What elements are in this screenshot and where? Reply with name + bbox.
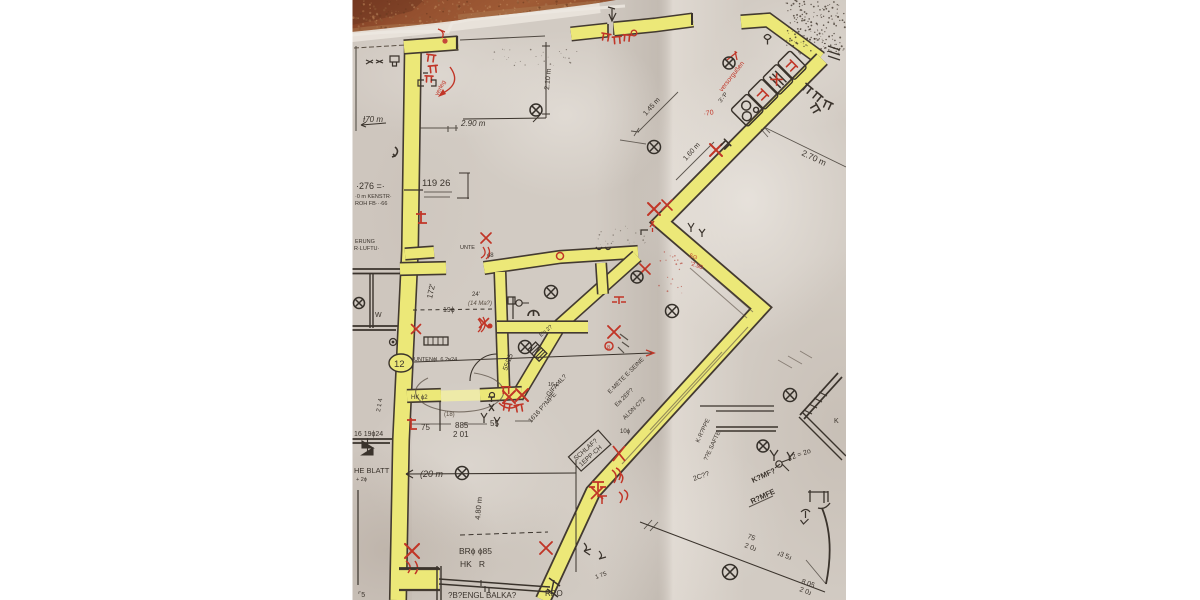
svg-text:(18): (18) [444,412,455,418]
svg-text:HK R: HK R [460,559,485,569]
svg-text:8: 8 [607,345,610,351]
svg-text:ROH FB···66: ROH FB···66 [355,201,387,207]
svg-text:Ɨ70 m: Ɨ70 m [363,115,383,124]
svg-text:K: K [834,418,839,425]
svg-text:2.90 m: 2.90 m [460,119,486,128]
svg-text:12: 12 [394,359,405,370]
svg-text:2 01: 2 01 [453,430,469,439]
svg-text:10ɸ: 10ɸ [620,429,631,435]
svg-text:?B?ENGL BALKA?: ?B?ENGL BALKA? [448,591,517,600]
svg-text:16 19ɸ24: 16 19ɸ24 [354,431,383,438]
svg-text:19ɸ: 19ɸ [443,307,455,314]
svg-text:W: W [375,312,382,319]
svg-text:ERUNG: ERUNG [355,239,375,245]
svg-text:885: 885 [455,421,469,430]
svg-text:UNTE: UNTE [460,245,475,251]
svg-text:R·LUFTU·: R·LUFTU· [354,246,380,252]
svg-text:BRɸ ɸ85: BRɸ ɸ85 [459,546,492,556]
svg-text:·276 =·: ·276 =· [356,181,385,191]
svg-text:·0 m KENSTR·: ·0 m KENSTR· [355,194,392,200]
svg-text:RRO: RRO [545,589,563,598]
svg-text:(14 Ma?): (14 Ma?) [468,301,492,307]
svg-text:55: 55 [490,419,499,428]
svg-text:HE BLATT: HE BLATT [354,466,390,475]
svg-text:119 26: 119 26 [422,178,450,189]
svg-text:24': 24' [472,292,480,298]
svg-text:+ 2ɸ: + 2ɸ [356,477,367,483]
svg-text:⌜5: ⌜5 [358,591,365,599]
svg-text:HK ɸ2: HK ɸ2 [411,395,428,401]
